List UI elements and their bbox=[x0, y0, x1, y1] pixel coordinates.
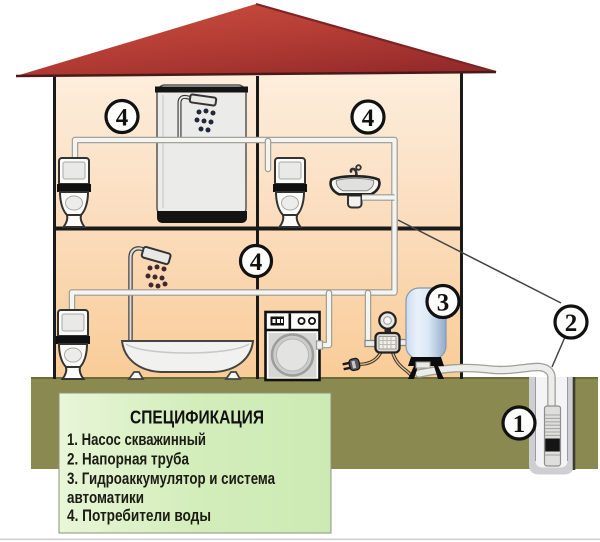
svg-text:СПЕЦИФИКАЦИЯ: СПЕЦИФИКАЦИЯ bbox=[130, 407, 264, 428]
svg-text:4: 4 bbox=[362, 105, 375, 132]
svg-text:4. Потребители воды: 4. Потребители воды bbox=[67, 507, 211, 525]
svg-text:1: 1 bbox=[513, 411, 526, 438]
svg-text:1. Насос скважинный: 1. Насос скважинный bbox=[67, 431, 206, 449]
svg-text:3. Гидроаккумулятор и система: 3. Гидроаккумулятор и система bbox=[67, 470, 276, 488]
svg-text:4: 4 bbox=[250, 249, 263, 276]
svg-text:автоматики: автоматики bbox=[67, 489, 144, 507]
svg-text:2. Напорная труба: 2. Напорная труба bbox=[67, 451, 190, 469]
svg-text:4: 4 bbox=[116, 105, 129, 132]
svg-text:3: 3 bbox=[437, 290, 450, 317]
svg-text:2: 2 bbox=[565, 310, 578, 337]
